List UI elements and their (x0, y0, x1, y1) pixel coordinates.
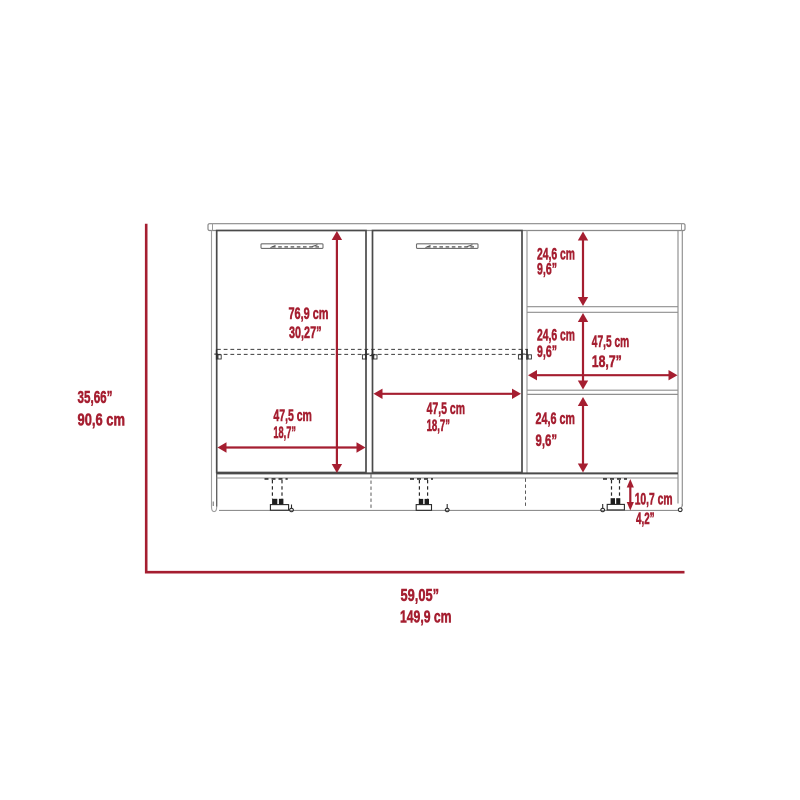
svg-text:90,6 cm: 90,6 cm (78, 410, 126, 430)
svg-text:24,6 cm: 24,6 cm (536, 410, 576, 428)
svg-text:10,7 cm: 10,7 cm (635, 491, 673, 509)
svg-text:24,6 cm: 24,6 cm (537, 326, 575, 344)
svg-text:18,7”: 18,7” (592, 353, 622, 371)
svg-text:4,2”: 4,2” (636, 510, 655, 528)
svg-text:76,9 cm: 76,9 cm (289, 305, 329, 323)
svg-text:47,5 cm: 47,5 cm (427, 400, 465, 418)
svg-text:59,05”: 59,05” (401, 585, 440, 605)
svg-text:9,6”: 9,6” (537, 261, 557, 279)
svg-text:149,9 cm: 149,9 cm (400, 607, 452, 627)
svg-text:9,6”: 9,6” (536, 432, 558, 450)
svg-text:47,5 cm: 47,5 cm (273, 407, 312, 425)
svg-text:47,5 cm: 47,5 cm (592, 333, 629, 351)
svg-text:30,27”: 30,27” (289, 324, 322, 342)
svg-text:18,7”: 18,7” (427, 417, 450, 435)
svg-text:18,7”: 18,7” (273, 424, 296, 442)
svg-text:9,6”: 9,6” (537, 343, 557, 361)
svg-text:35,66”: 35,66” (78, 387, 113, 407)
